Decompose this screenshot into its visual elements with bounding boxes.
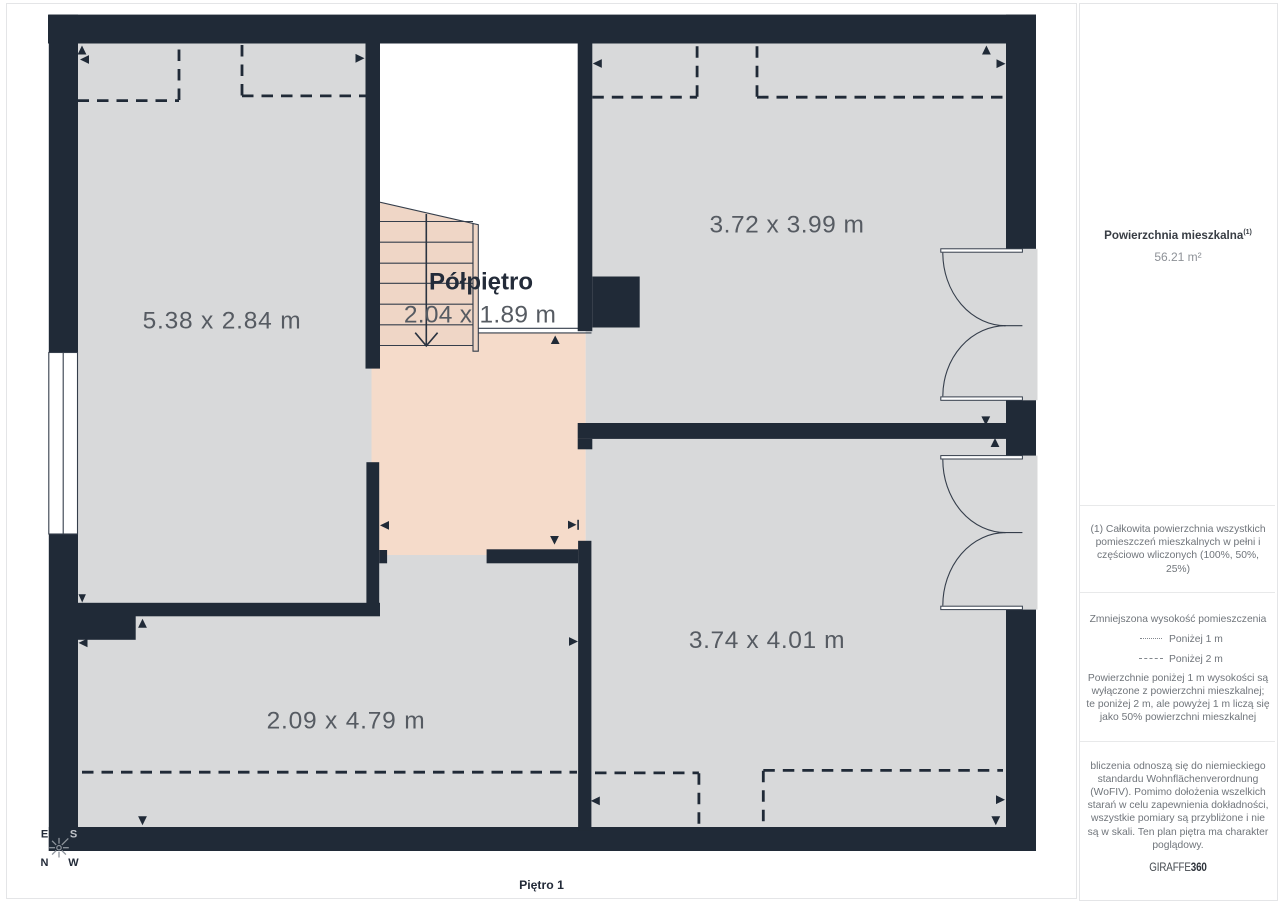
svg-text:2.04 x 1.89 m: 2.04 x 1.89 m [404, 302, 556, 329]
svg-text:2.09 x 4.79 m: 2.09 x 4.79 m [267, 708, 426, 735]
svg-text:Półpiętro: Półpiętro [429, 269, 533, 296]
svg-text:Piętro 1: Piętro 1 [519, 878, 564, 892]
svg-text:3.74 x 4.01 m: 3.74 x 4.01 m [689, 627, 845, 654]
svg-text:W: W [68, 857, 79, 869]
svg-text:E: E [41, 829, 48, 841]
svg-text:S: S [70, 829, 77, 841]
svg-text:5.38 x 2.84 m: 5.38 x 2.84 m [143, 308, 302, 335]
svg-text:N: N [41, 857, 49, 869]
svg-text:3.72 x 3.99 m: 3.72 x 3.99 m [710, 212, 865, 239]
